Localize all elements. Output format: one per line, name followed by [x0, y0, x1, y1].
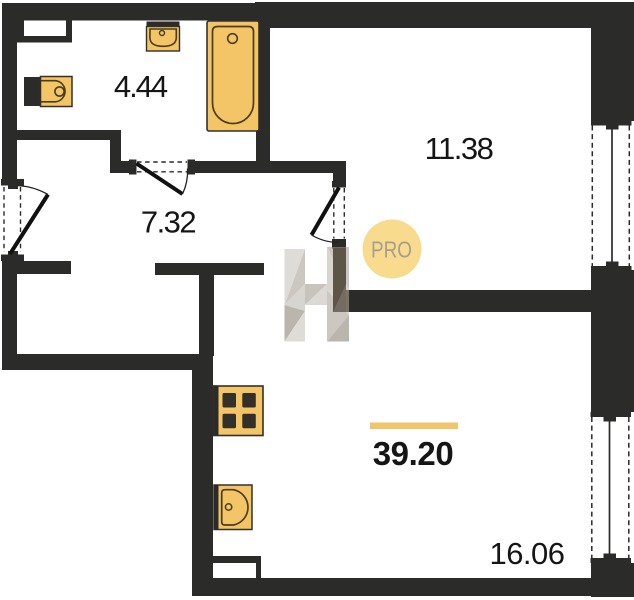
svg-text:7.32: 7.32 [141, 205, 196, 240]
svg-text:PRO: PRO [371, 237, 412, 263]
svg-text:39.20: 39.20 [373, 435, 454, 472]
svg-text:4.44: 4.44 [114, 69, 168, 104]
svg-text:11.38: 11.38 [425, 131, 493, 166]
svg-text:16.06: 16.06 [489, 536, 564, 571]
